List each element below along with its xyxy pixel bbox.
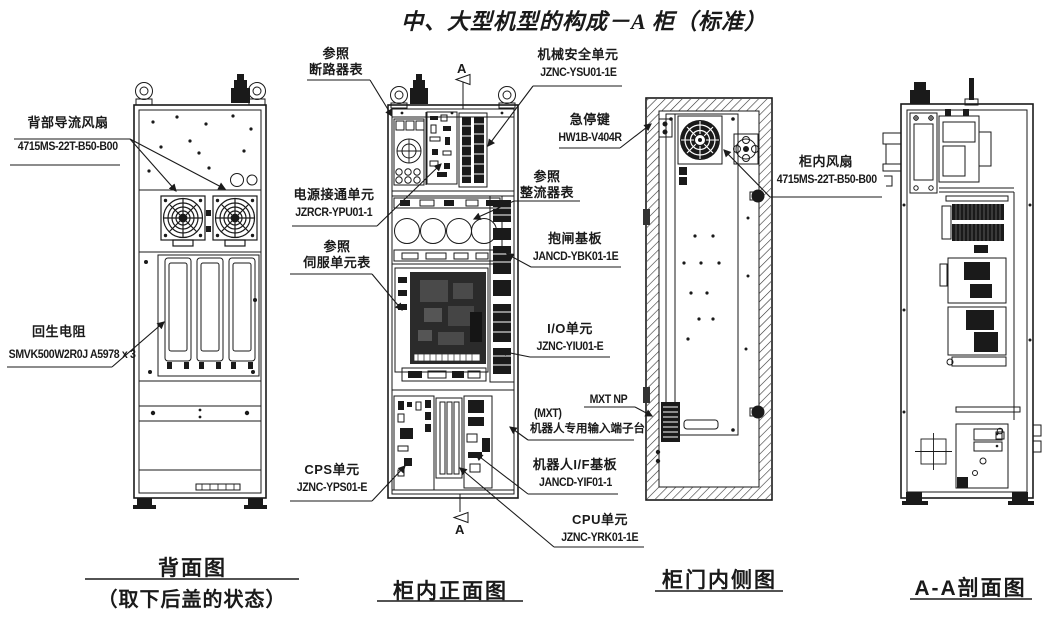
door-handle-profile	[883, 133, 901, 186]
diagram-linework	[0, 0, 1054, 617]
caption-back-view: 背面图	[120, 552, 265, 582]
label-cps-unit: CPS单元 JZNC-YPS01-E	[287, 462, 377, 496]
technical-diagram-canvas: 中、大型机型的构成－A 柜（标准） A A 背部导流风扇 4715MS-22T-…	[0, 0, 1054, 617]
heat-sink	[942, 196, 1008, 253]
label-regen-resistor: 回生电阻 SMVK500W2R0J A5978 x 3	[0, 324, 118, 363]
cable-gland-icon	[231, 74, 250, 103]
rectifier-unit	[392, 196, 502, 264]
section-view-drawing	[883, 78, 1041, 505]
section-mid-components	[940, 258, 1006, 366]
fan-band-bits	[206, 210, 211, 232]
right-connectors	[1033, 425, 1041, 452]
label-safety-unit: 机械安全单元 JZNC-YSU01-1E	[530, 47, 626, 81]
section-cross-square	[915, 433, 952, 470]
door-view-drawing	[643, 98, 772, 500]
label-estop: 急停键 HW1B-V404R	[545, 112, 635, 146]
machine-safety-unit-board	[459, 113, 487, 187]
card-slots	[436, 398, 462, 478]
cps-unit-board	[394, 396, 434, 490]
label-io-unit: I/O单元 JZNC-YIU01-E	[524, 321, 616, 355]
door-fan	[678, 116, 722, 164]
back-fan-right	[213, 196, 257, 246]
servo-unit-board	[395, 268, 488, 381]
cable-gland-icon	[910, 82, 930, 104]
label-robot-if-board: 机器人I/F基板 JANCD-YIF01-1	[525, 457, 625, 491]
label-ref-rectifier: 参照 整流器表	[512, 169, 582, 200]
caption-section-view: A-A剖面图	[898, 572, 1043, 602]
mxt-terminal-block	[661, 402, 680, 442]
label-cpu-unit: CPU单元 JZNC-YRK01-1E	[552, 512, 648, 546]
section-letter-top: A	[457, 61, 466, 76]
section-bottom-box	[956, 424, 1008, 488]
label-brake-board: 抱闸基板 JANCD-YBK01-1E	[527, 231, 623, 265]
rotary-handle-icon	[734, 134, 759, 164]
caption-door-view: 柜门内侧图	[647, 564, 792, 594]
circuit-breaker	[394, 119, 424, 185]
caption-front-view: 柜内正面图	[378, 575, 523, 605]
section-top-plate	[910, 113, 937, 193]
regen-resistors	[144, 255, 259, 376]
label-back-fan: 背部导流风扇 4715MS-22T-B50-B00	[4, 115, 132, 155]
label-ref-servo: 参照 伺服单元表	[299, 239, 375, 270]
back-fan-left	[161, 196, 205, 246]
section-letter-bottom: A	[455, 522, 464, 537]
section-top-component	[939, 109, 991, 182]
screw-dots	[147, 114, 252, 172]
page-title: 中、大型机型的构成－A 柜（标准）	[324, 4, 844, 36]
caption-back-view-sub: （取下后盖的状态）	[92, 583, 292, 612]
label-power-on-unit: 电源接通单元 JZRCR-YPU01-1	[288, 187, 380, 221]
front-view-drawing	[388, 74, 518, 523]
lower-panel-screws	[151, 409, 249, 419]
label-mxt-terminal: (MXT) 机器人专用输入端子台	[530, 404, 640, 437]
back-view-drawing	[133, 74, 267, 509]
section-marker-top	[456, 75, 470, 110]
door-small-parts	[679, 167, 687, 185]
cable-gland-icon	[410, 74, 428, 104]
label-cabinet-fan: 柜内风扇 4715MS-22T-B50-B00	[770, 154, 882, 188]
label-ref-breaker: 参照 断路器表	[301, 46, 371, 77]
cabinet-feet	[133, 498, 267, 509]
antenna-pin	[965, 78, 978, 105]
